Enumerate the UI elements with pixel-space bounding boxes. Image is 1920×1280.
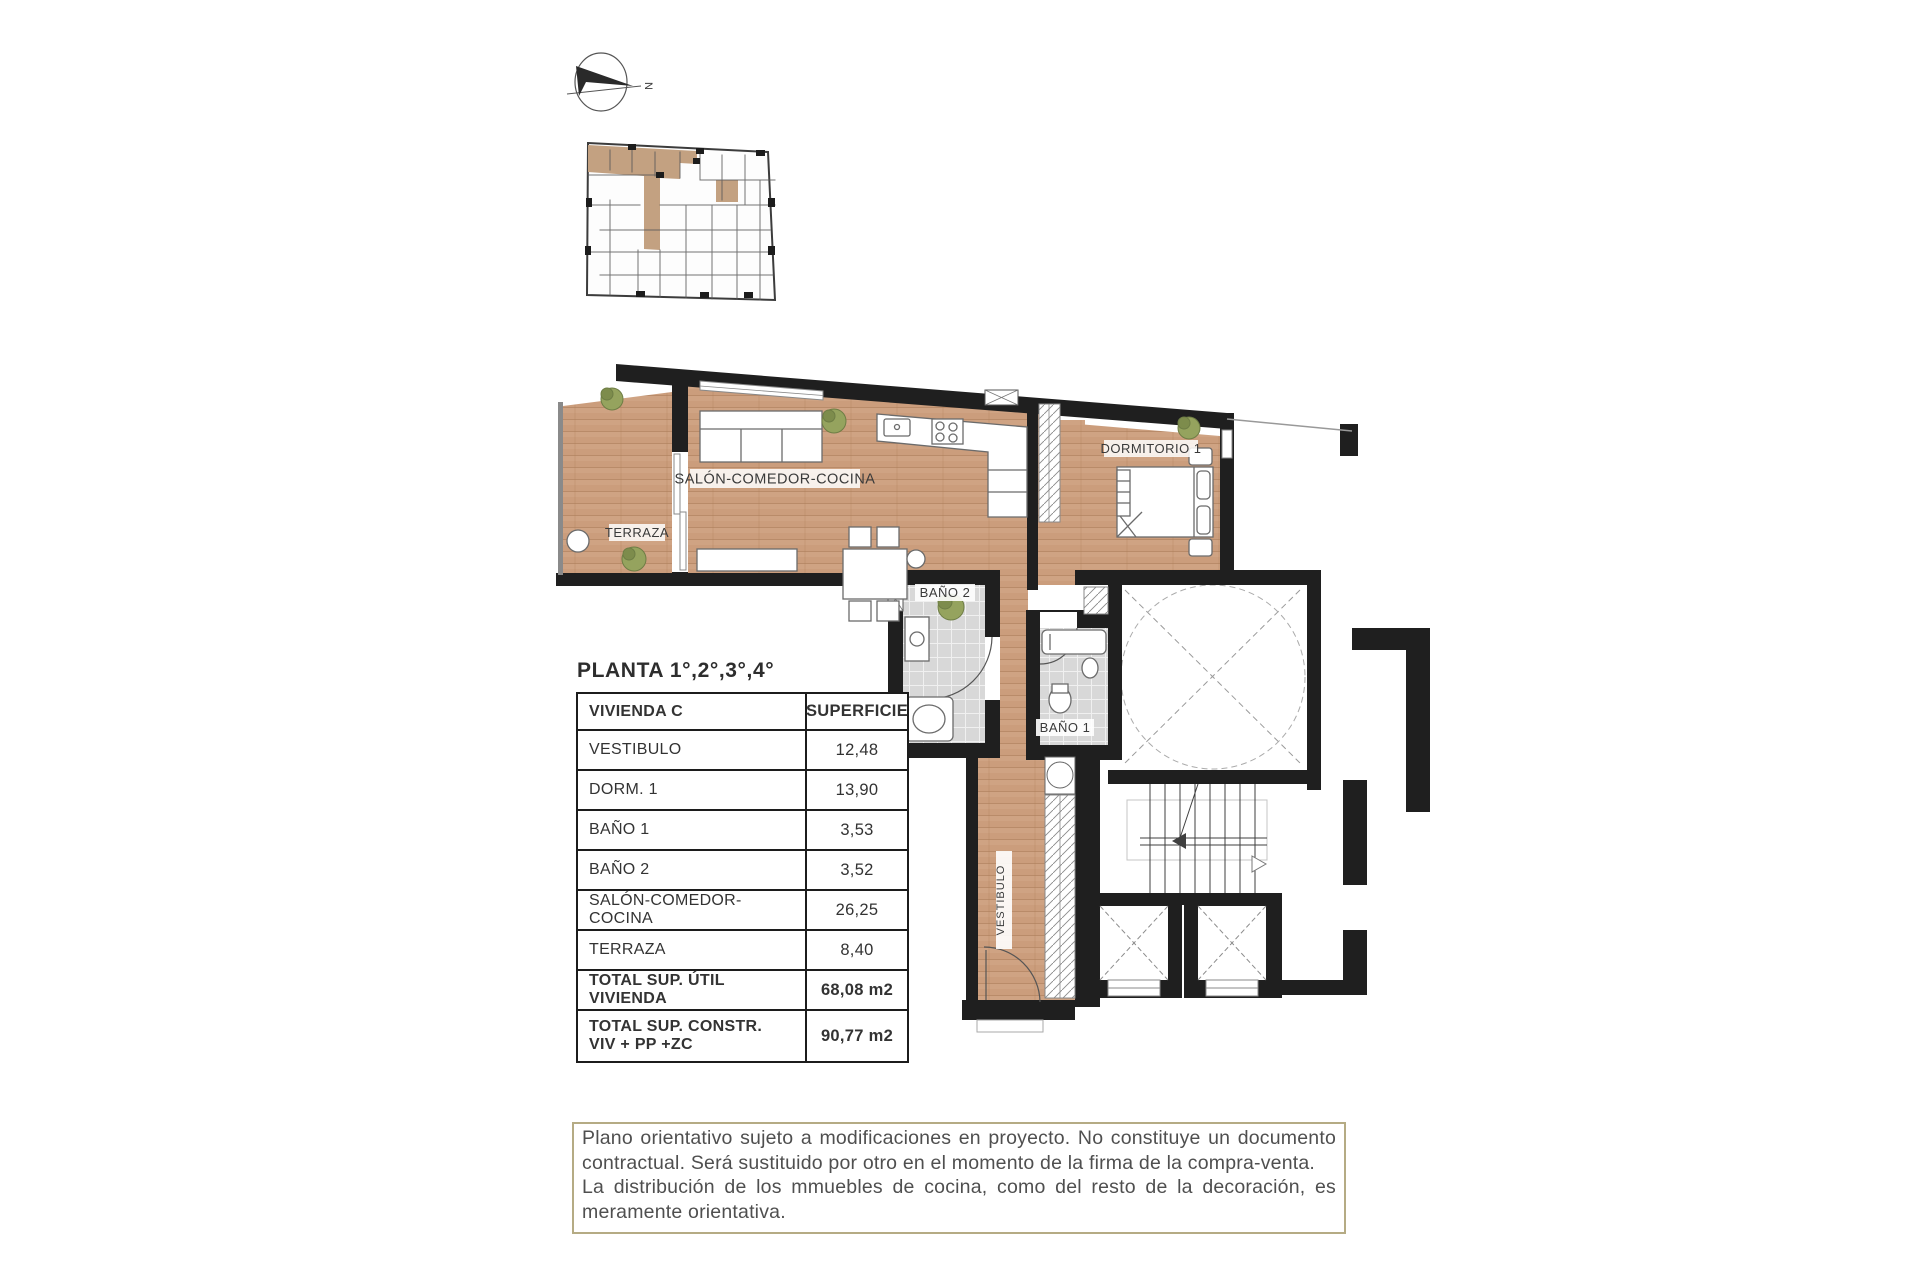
bed bbox=[1117, 467, 1213, 537]
sideboard bbox=[697, 549, 797, 571]
svg-text:DORMITORIO 1: DORMITORIO 1 bbox=[1100, 441, 1201, 456]
disclaimer-paragraph-1: Plano orientativo sujeto a modificacione… bbox=[582, 1126, 1336, 1175]
disclaimer-paragraph-2: La distribución de los mmuebles de cocin… bbox=[582, 1175, 1336, 1224]
row-value: 26,25 bbox=[805, 891, 907, 929]
svg-text:VESTIBULO: VESTIBULO bbox=[995, 865, 1007, 936]
row-value: 12,48 bbox=[805, 731, 907, 769]
table-header-row: VIVIENDA C SUPERFICIE bbox=[578, 694, 907, 729]
table-row: SALÓN-COMEDOR-COCINA 26,25 bbox=[578, 889, 907, 929]
label-dormitorio: DORMITORIO 1 bbox=[1100, 440, 1201, 457]
key-plan bbox=[585, 143, 775, 300]
svg-text:BAÑO 2: BAÑO 2 bbox=[920, 585, 971, 600]
communal-areas bbox=[1100, 584, 1307, 893]
total-label: TOTAL SUP. ÚTIL VIVIENDA bbox=[578, 971, 805, 1009]
table-row: VESTIBULO 12,48 bbox=[578, 729, 907, 769]
stove bbox=[932, 419, 963, 444]
table-row: BAÑO 1 3,53 bbox=[578, 809, 907, 849]
total-label: TOTAL SUP. CONSTR. VIV + PP +ZC bbox=[578, 1011, 805, 1061]
row-label: DORM. 1 bbox=[578, 771, 805, 809]
total-label-line2: VIV + PP +ZC bbox=[589, 1036, 805, 1054]
area-table: VIVIENDA C SUPERFICIE VESTIBULO 12,48 DO… bbox=[576, 692, 909, 1063]
svg-text:TERRAZA: TERRAZA bbox=[605, 525, 669, 540]
total-value: 90,77 m2 bbox=[805, 1011, 907, 1061]
terrace-chair bbox=[567, 530, 589, 552]
table-row: TERRAZA 8,40 bbox=[578, 929, 907, 969]
compass-icon: N bbox=[567, 53, 654, 111]
floorplan-page: N bbox=[0, 0, 1920, 1280]
header-superficie: SUPERFICIE bbox=[805, 694, 907, 729]
bedroom-window bbox=[1222, 430, 1232, 458]
plan-title: PLANTA 1°,2°,3°,4° bbox=[577, 659, 909, 683]
nightstand bbox=[1189, 539, 1212, 556]
table-row: BAÑO 2 3,52 bbox=[578, 849, 907, 889]
total-value: 68,08 m2 bbox=[805, 971, 907, 1009]
svg-text:SALÓN-COMEDOR-COCINA: SALÓN-COMEDOR-COCINA bbox=[675, 471, 876, 488]
disclaimer-box: Plano orientativo sujeto a modificacione… bbox=[572, 1122, 1346, 1234]
sink bbox=[1082, 658, 1098, 678]
header-vivienda: VIVIENDA C bbox=[578, 694, 805, 729]
label-vestibulo: VESTIBULO bbox=[995, 851, 1012, 949]
row-value: 8,40 bbox=[805, 931, 907, 969]
row-label: VESTIBULO bbox=[578, 731, 805, 769]
total-label-line1: TOTAL SUP. CONSTR. bbox=[589, 1018, 805, 1036]
area-table-block: PLANTA 1°,2°,3°,4° VIVIENDA C SUPERFICIE… bbox=[576, 659, 909, 1063]
table-total-row: TOTAL SUP. ÚTIL VIVIENDA 68,08 m2 bbox=[578, 969, 907, 1009]
bathtub bbox=[905, 697, 953, 741]
row-value: 13,90 bbox=[805, 771, 907, 809]
row-value: 3,53 bbox=[805, 811, 907, 849]
row-label: TERRAZA bbox=[578, 931, 805, 969]
elevators bbox=[1100, 906, 1266, 996]
bathtub bbox=[1042, 630, 1106, 654]
row-label: SALÓN-COMEDOR-COCINA bbox=[578, 891, 805, 929]
entry-step bbox=[977, 1020, 1043, 1032]
label-salon: SALÓN-COMEDOR-COCINA bbox=[675, 469, 876, 488]
row-value: 3,52 bbox=[805, 851, 907, 889]
boundary-line bbox=[1227, 419, 1352, 431]
floorplan-drawing: N bbox=[0, 0, 1920, 1280]
label-bano1: BAÑO 1 bbox=[1036, 719, 1094, 736]
label-bano2: BAÑO 2 bbox=[915, 584, 975, 601]
table-row: DORM. 1 13,90 bbox=[578, 769, 907, 809]
sofa bbox=[700, 411, 822, 462]
terrace-railing bbox=[558, 402, 563, 575]
label-terraza: TERRAZA bbox=[605, 524, 669, 541]
table-total-row: TOTAL SUP. CONSTR. VIV + PP +ZC 90,77 m2 bbox=[578, 1009, 907, 1061]
svg-text:BAÑO 1: BAÑO 1 bbox=[1040, 720, 1091, 735]
compass-north-label: N bbox=[642, 82, 654, 90]
row-label: BAÑO 2 bbox=[578, 851, 805, 889]
row-label: BAÑO 1 bbox=[578, 811, 805, 849]
